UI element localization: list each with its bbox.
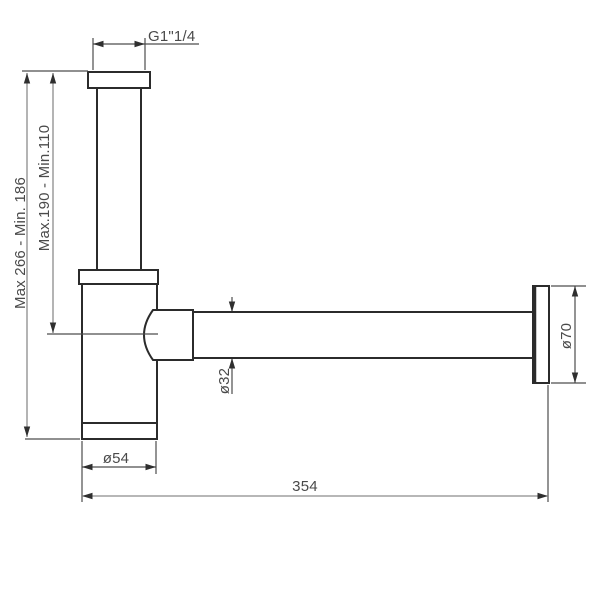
arrowhead [93, 41, 104, 47]
bottle-top-nut [79, 270, 158, 284]
arrowhead [24, 427, 30, 438]
inlet-pipe [97, 88, 141, 270]
dimension-thread: G1"1/4 [93, 28, 199, 47]
bottle-trap-dimension-drawing: G1"1/4 Max 266 - Min. 186 Max.190 - Min.… [0, 0, 600, 600]
arrowhead [146, 464, 157, 470]
outlet-pipe [193, 312, 533, 358]
dimension-rosette-diameter: ø70 [558, 286, 578, 383]
arrowhead [82, 464, 93, 470]
dimension-body-diameter: ø54 [82, 450, 156, 470]
body-diameter-label: ø54 [103, 450, 129, 467]
dimension-overall-height: Max 266 - Min. 186 [12, 73, 30, 437]
arrowhead [572, 286, 578, 297]
overall-height-label: Max 266 - Min. 186 [12, 177, 29, 309]
rosette-diameter-label: ø70 [558, 323, 575, 349]
arrowhead [50, 73, 56, 84]
arrowhead [82, 493, 93, 499]
arrowhead [229, 358, 235, 369]
thread-label: G1"1/4 [148, 28, 195, 45]
overall-length-label: 354 [292, 478, 318, 495]
top-nut [88, 72, 150, 88]
arrowhead [24, 73, 30, 84]
inlet-height-label: Max.190 - Min.110 [36, 125, 53, 252]
dimension-overall-length: 354 [82, 478, 548, 499]
arrowhead [538, 493, 549, 499]
trap-outline [79, 72, 549, 439]
arrowhead [50, 323, 56, 334]
arrowhead [229, 302, 235, 313]
arrowhead [135, 41, 146, 47]
technical-drawing-canvas: G1"1/4 Max 266 - Min. 186 Max.190 - Min.… [0, 0, 600, 600]
outlet-nut [144, 310, 193, 360]
bottle-body [82, 284, 157, 439]
dimension-inlet-height: Max.190 - Min.110 [36, 73, 56, 333]
arrowhead [572, 373, 578, 384]
pipe-diameter-label: ø32 [216, 368, 233, 394]
